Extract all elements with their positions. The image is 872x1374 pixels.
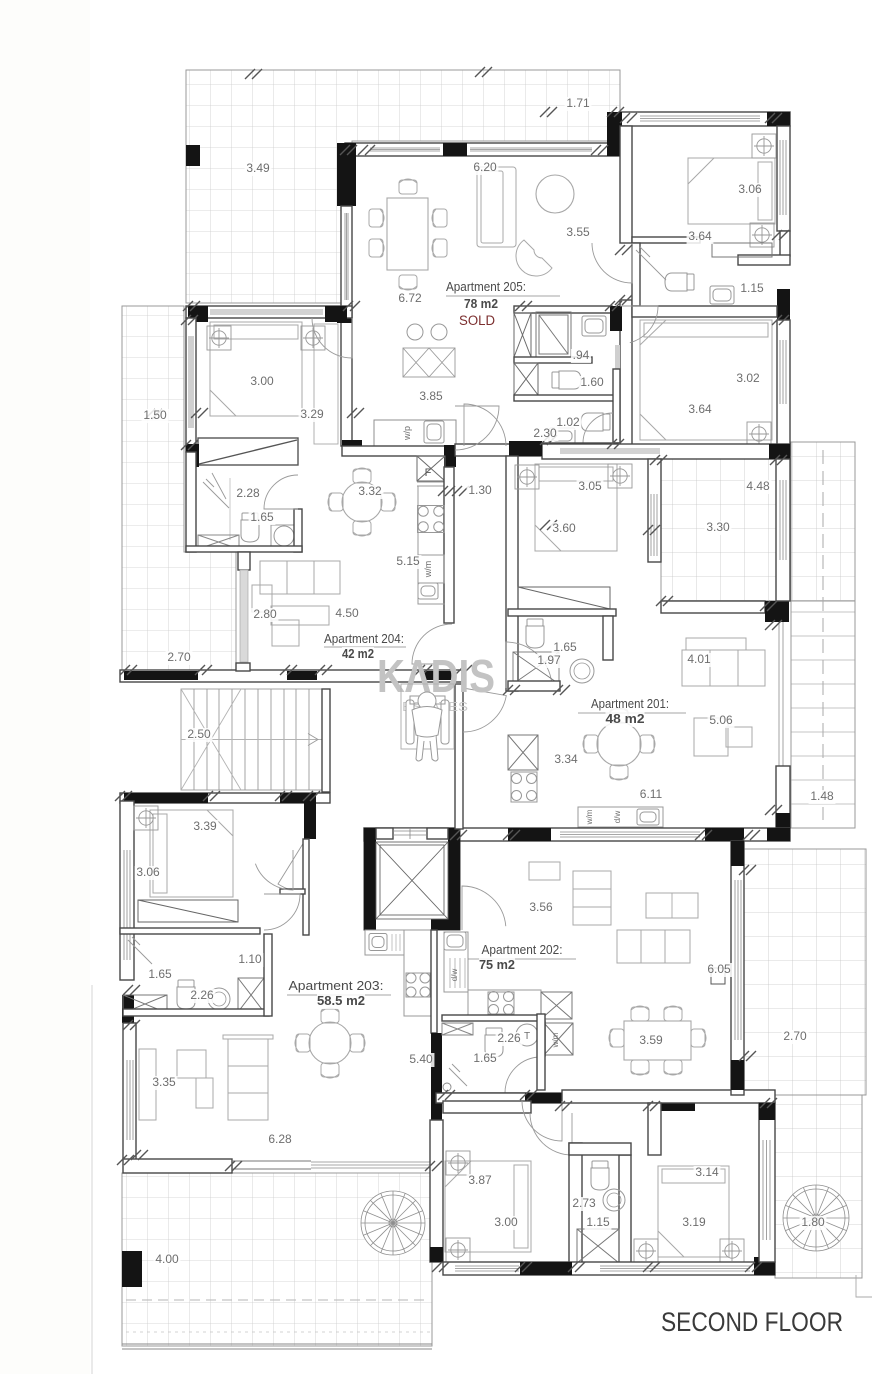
svg-text:Apartment 205:: Apartment 205: <box>446 279 526 294</box>
svg-text:1.15: 1.15 <box>586 1215 610 1229</box>
svg-text:6.28: 6.28 <box>268 1132 292 1146</box>
svg-text:3.60: 3.60 <box>552 521 576 535</box>
svg-text:w/p: w/p <box>402 426 412 441</box>
svg-text:3.30: 3.30 <box>706 520 730 534</box>
svg-text:2.26: 2.26 <box>190 988 214 1002</box>
svg-text:1.10: 1.10 <box>238 952 262 966</box>
svg-text:6.11: 6.11 <box>640 787 663 801</box>
svg-text:1.65: 1.65 <box>553 640 577 654</box>
svg-text:3.14: 3.14 <box>695 1165 719 1179</box>
svg-text:2.70: 2.70 <box>167 650 191 664</box>
svg-text:2.73: 2.73 <box>572 1196 596 1210</box>
svg-text:2.70: 2.70 <box>783 1029 807 1043</box>
svg-text:2.28: 2.28 <box>236 486 260 500</box>
svg-text:3.59: 3.59 <box>639 1033 663 1047</box>
svg-text:KΛDIS: KΛDIS <box>377 650 495 702</box>
svg-text:3.29: 3.29 <box>300 407 324 421</box>
svg-text:58.5 m2: 58.5 m2 <box>317 993 365 1008</box>
svg-text:d/w: d/w <box>450 969 459 982</box>
svg-text:2.30: 2.30 <box>533 426 557 440</box>
svg-text:Apartment 202:: Apartment 202: <box>482 942 563 957</box>
svg-text:3.55: 3.55 <box>566 225 590 239</box>
svg-text:5.40: 5.40 <box>409 1052 433 1066</box>
svg-text:w/m: w/m <box>585 809 594 825</box>
svg-text:3.32: 3.32 <box>358 484 382 498</box>
svg-text:F: F <box>425 467 432 479</box>
svg-text:SOLD: SOLD <box>459 313 495 328</box>
svg-text:3.05: 3.05 <box>578 479 602 493</box>
svg-text:1.02: 1.02 <box>556 415 580 429</box>
svg-text:1.65: 1.65 <box>250 510 274 524</box>
svg-text:75 m2: 75 m2 <box>479 957 515 972</box>
svg-text:3.39: 3.39 <box>193 819 217 833</box>
svg-text:3.02: 3.02 <box>736 371 760 385</box>
svg-text:3.06: 3.06 <box>738 182 762 196</box>
svg-text:6.72: 6.72 <box>398 291 422 305</box>
svg-text:1.15: 1.15 <box>740 281 764 295</box>
svg-text:3.35: 3.35 <box>152 1075 176 1089</box>
svg-text:1.60: 1.60 <box>580 375 604 389</box>
svg-text:w/m: w/m <box>551 1032 560 1048</box>
svg-text:Apartment 204:: Apartment 204: <box>324 631 404 646</box>
svg-text:48 m2: 48 m2 <box>606 711 645 726</box>
svg-text:3.87: 3.87 <box>468 1173 492 1187</box>
svg-text:SECOND FLOOR: SECOND FLOOR <box>661 1307 843 1337</box>
svg-text:5.06: 5.06 <box>709 713 733 727</box>
svg-text:3.19: 3.19 <box>682 1215 706 1229</box>
svg-text:Apartment 201:: Apartment 201: <box>591 696 669 711</box>
svg-text:3.00: 3.00 <box>250 374 274 388</box>
svg-text:4.48: 4.48 <box>746 479 770 493</box>
svg-text:3.06: 3.06 <box>136 865 160 879</box>
svg-text:1.50: 1.50 <box>143 408 167 422</box>
svg-text:2.80: 2.80 <box>253 607 277 621</box>
svg-text:6.05: 6.05 <box>707 962 731 976</box>
svg-text:1.71: 1.71 <box>566 96 590 110</box>
svg-text:.94: .94 <box>573 348 590 362</box>
svg-text:2.26: 2.26 <box>497 1031 521 1045</box>
svg-text:4.50: 4.50 <box>335 606 359 620</box>
svg-text:78 m2: 78 m2 <box>464 296 498 311</box>
svg-text:Apartment 203:: Apartment 203: <box>289 978 384 993</box>
svg-text:1.30: 1.30 <box>468 483 492 497</box>
svg-text:42 m2: 42 m2 <box>342 646 374 661</box>
svg-text:d/w: d/w <box>613 811 622 824</box>
svg-text:1.80: 1.80 <box>801 1215 825 1229</box>
svg-text:3.64: 3.64 <box>688 402 712 416</box>
svg-text:3.49: 3.49 <box>246 161 270 175</box>
svg-text:2.50: 2.50 <box>187 727 211 741</box>
svg-text:4.01: 4.01 <box>687 652 711 666</box>
svg-text:4.00: 4.00 <box>155 1252 179 1266</box>
svg-text:w/m: w/m <box>423 561 433 579</box>
svg-text:T: T <box>524 1031 530 1042</box>
svg-text:3.34: 3.34 <box>554 752 578 766</box>
svg-text:3.56: 3.56 <box>529 900 553 914</box>
svg-text:1.65: 1.65 <box>148 967 172 981</box>
svg-text:1.48: 1.48 <box>810 789 834 803</box>
svg-text:5.15: 5.15 <box>396 554 420 568</box>
svg-text:3.85: 3.85 <box>419 389 443 403</box>
svg-text:3.00: 3.00 <box>494 1215 518 1229</box>
svg-text:3.64: 3.64 <box>688 229 712 243</box>
svg-text:1.97: 1.97 <box>537 653 561 667</box>
svg-text:1.65: 1.65 <box>473 1051 497 1065</box>
svg-text:6.20: 6.20 <box>473 160 497 174</box>
